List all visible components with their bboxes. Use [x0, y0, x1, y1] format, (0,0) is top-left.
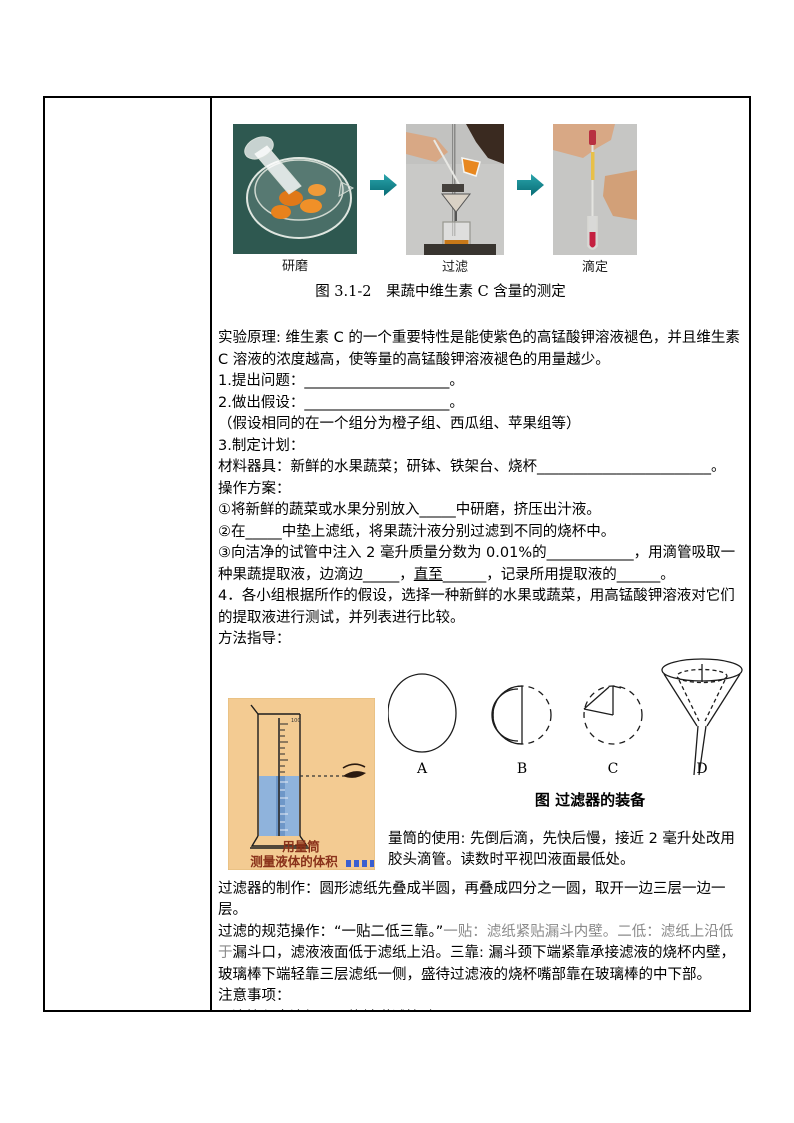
- grinding-photo: [233, 124, 357, 254]
- experiment-text: 实验原理: 维生素 C 的一个重要特性是能使紫色的高锰酸钾溶液褪色，并且维生素 …: [218, 328, 745, 651]
- cylinder-use-paragraph: 量筒的使用: 先倒后滴，先快后慢，接近 2 毫升处改用胶头滴管。读数时平视凹液面…: [388, 829, 746, 872]
- materials-line: 材料器具：新鲜的水果蔬菜；研钵、铁架台、烧杯__________________…: [218, 457, 745, 479]
- procedure-title: 操作方案：: [218, 479, 745, 501]
- cylinder-caption-line1: 用量筒: [281, 839, 320, 854]
- method-figures: 100 用量筒 测量液体的体积: [218, 653, 745, 879]
- arrow-right-icon: [517, 174, 544, 204]
- measuring-cylinder-figure: 100 用量筒 测量液体的体积: [228, 698, 375, 870]
- procedure-step-1: ①将新鲜的蔬菜或水果分别放入_____中研磨，挤压出汁液。: [218, 500, 745, 522]
- filtering-photo-figure: 过滤: [406, 124, 504, 274]
- step3-underlined: 直至: [414, 567, 443, 583]
- circle-a: [388, 674, 456, 752]
- label-d: D: [696, 761, 707, 777]
- svg-text:100: 100: [291, 718, 301, 724]
- titration-photo-figure: 滴定: [553, 124, 637, 274]
- procedure-step-4: 4．各小组根据所作的假设，选择一种新鲜的水果或蔬菜，用高锰酸钾溶液对它们的提取液…: [218, 586, 745, 629]
- filter-making-line: 过滤器的制作：圆形滤纸先叠成半圆，再叠成四分之一圆，取开一边三层一边一层。: [218, 879, 745, 922]
- arrow-right-icon: [370, 174, 397, 204]
- funnel-with-paper: [662, 659, 742, 775]
- filter-paper-fold-diagram: A B C D: [388, 653, 749, 781]
- grinding-photo-figure: 研磨: [233, 124, 357, 273]
- circle-b: [492, 686, 551, 744]
- test-tube: [588, 216, 597, 249]
- grouping-hint: （假设相同的在一个组分为橙子组、西瓜组、苹果组等）: [218, 414, 745, 436]
- photo-caption-filtering: 过滤: [442, 261, 468, 274]
- plan-title: 3.制定计划：: [218, 436, 745, 458]
- cylinder-caption-line2: 测量液体的体积: [250, 854, 338, 869]
- label-c: C: [608, 761, 619, 777]
- procedure-step-2: ②在_____中垫上滤纸，将果蔬汁液分别过滤到不同的烧杯中。: [218, 522, 745, 544]
- figure-3-1-2-caption: 图 3.1-2 果蔬中维生素 C 含量的测定: [218, 284, 663, 300]
- circle-c: [584, 686, 642, 744]
- method-guide-title: 方法指导：: [218, 629, 745, 651]
- titration-photo: [553, 124, 637, 255]
- filter-rule-paragraph: 过滤的规范操作：“一贴二低三靠。”一贴：滤纸紧贴漏斗内壁。二低：滤纸上沿低于漏斗…: [218, 922, 745, 987]
- filter-diagram-caption: 图 过滤器的装备: [470, 792, 710, 809]
- filter-rule-head: 过滤的规范操作：“一贴二低三靠。”: [218, 924, 443, 940]
- question-line: 1.提出问题：____________________。: [218, 371, 745, 393]
- experiment-photo-strip: 研磨: [233, 124, 745, 274]
- label-b: B: [517, 761, 527, 777]
- worksheet-table: 研磨: [43, 96, 751, 1012]
- content-cell: 研磨: [212, 98, 749, 1010]
- hypothesis-line: 2.做出假设：____________________。: [218, 393, 745, 415]
- notes-title: 注意事项：: [218, 986, 745, 1008]
- empty-left-cell: [45, 98, 212, 1010]
- experiment-principle: 实验原理: 维生素 C 的一个重要特性是能使紫色的高锰酸钾溶液褪色，并且维生素 …: [218, 328, 745, 371]
- step3-part-b: ______，记录所用提取液的______。: [443, 567, 675, 583]
- procedure-step-3: ③向洁净的试管中注入 2 毫升质量分数为 0.01%的____________，…: [218, 543, 745, 586]
- label-a: A: [416, 761, 428, 777]
- note-1: 1.滴管竖直滴加，不能触碰试管壁。: [218, 1008, 745, 1011]
- photo-caption-grinding: 研磨: [282, 260, 308, 273]
- lower-text: 过滤器的制作：圆形滤纸先叠成半圆，再叠成四分之一圆，取开一边三层一边一层。 过滤…: [218, 879, 745, 1011]
- filter-rule-rest: 漏斗口，滤液液面低于滤纸上沿。三靠: 漏斗颈下端紧靠承接滤液的烧杯内壁，玻璃棒下…: [218, 945, 735, 983]
- filtering-photo: [406, 124, 504, 255]
- photo-caption-titration: 滴定: [582, 261, 608, 274]
